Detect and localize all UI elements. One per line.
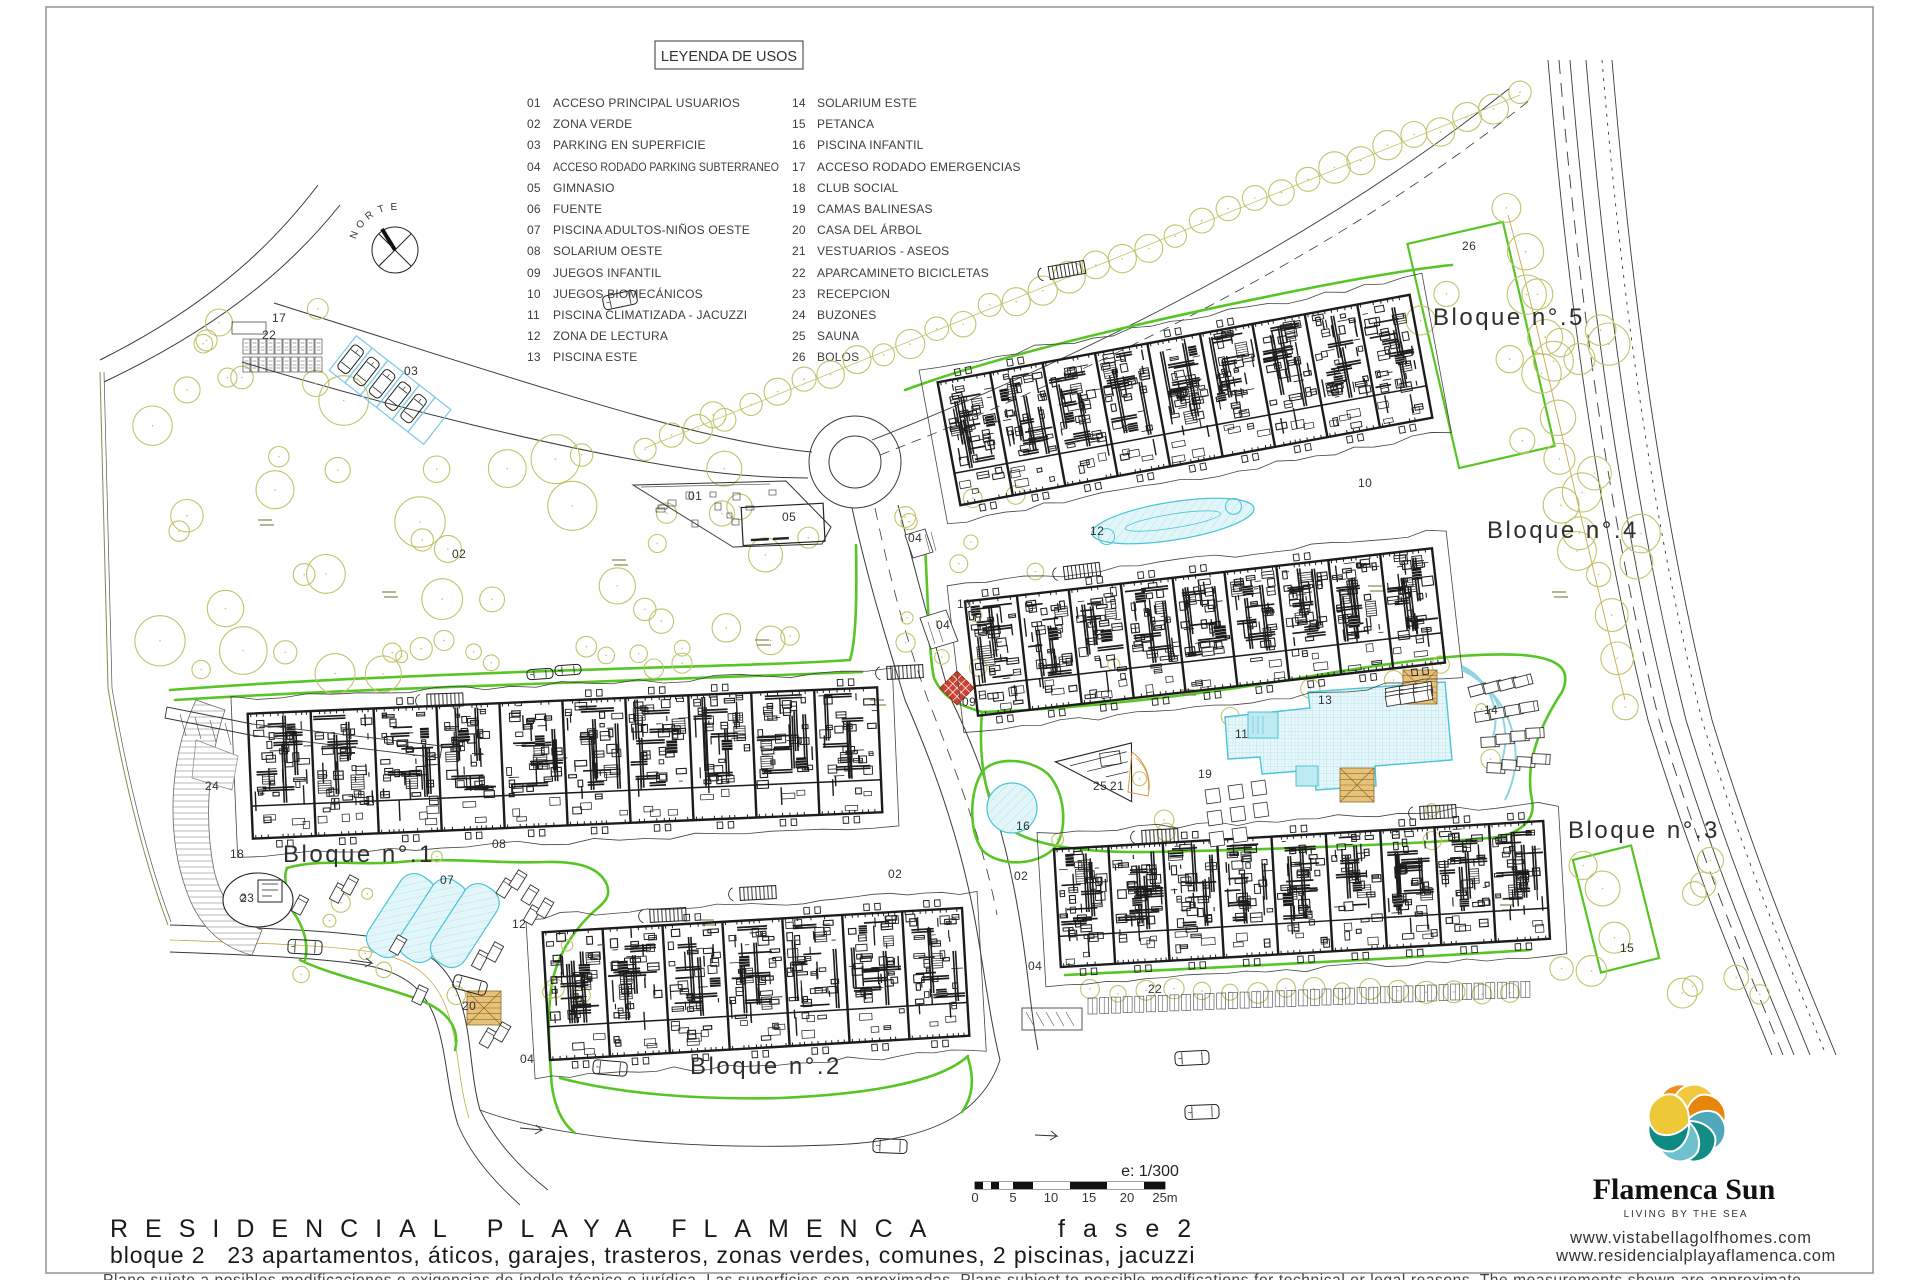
svg-text:08: 08 bbox=[527, 244, 541, 258]
svg-text:19: 19 bbox=[1198, 767, 1212, 781]
svg-text:ACCESO RODADO EMERGENCIAS: ACCESO RODADO EMERGENCIAS bbox=[817, 160, 1021, 174]
svg-text:02: 02 bbox=[527, 117, 541, 131]
svg-text:Plano sujeto a posibles modifi: Plano sujeto a posibles modificaciones o… bbox=[103, 1272, 1801, 1280]
svg-text:RECEPCION: RECEPCION bbox=[817, 287, 890, 301]
svg-text:e: 1/300: e: 1/300 bbox=[1121, 1163, 1179, 1180]
svg-text:20: 20 bbox=[462, 999, 476, 1013]
svg-text:PISCINA ADULTOS-NIÑOS OESTE: PISCINA ADULTOS-NIÑOS OESTE bbox=[553, 223, 750, 237]
svg-text:CAMAS BALINESAS: CAMAS BALINESAS bbox=[817, 202, 933, 216]
svg-text:10: 10 bbox=[527, 287, 541, 301]
svg-text:BUZONES: BUZONES bbox=[817, 308, 876, 322]
svg-text:15: 15 bbox=[1620, 941, 1634, 955]
svg-text:02: 02 bbox=[1014, 869, 1028, 883]
svg-text:04: 04 bbox=[936, 618, 950, 632]
svg-text:05: 05 bbox=[782, 510, 796, 524]
svg-text:ACCESO PRINCIPAL USUARIOS: ACCESO PRINCIPAL USUARIOS bbox=[553, 96, 740, 110]
svg-text:PISCINA CLIMATIZADA - JACUZZI: PISCINA CLIMATIZADA - JACUZZI bbox=[553, 308, 747, 322]
svg-text:SAUNA: SAUNA bbox=[817, 329, 859, 343]
svg-text:01: 01 bbox=[527, 96, 541, 110]
svg-text:ACCESO RODADO PARKING SUBTERRA: ACCESO RODADO PARKING SUBTERRANEO bbox=[553, 160, 779, 174]
svg-text:FUENTE: FUENTE bbox=[553, 202, 602, 216]
svg-text:18: 18 bbox=[230, 847, 244, 861]
svg-text:21: 21 bbox=[1110, 779, 1124, 793]
svg-text:03: 03 bbox=[527, 138, 541, 152]
svg-text:bloque 2 23 apartamentos, át: bloque 2 23 apartamentos, áticos, garaje… bbox=[110, 1242, 1195, 1268]
svg-text:PISCINA ESTE: PISCINA ESTE bbox=[553, 350, 637, 364]
svg-text:25m: 25m bbox=[1152, 1190, 1177, 1205]
svg-text:22: 22 bbox=[262, 328, 276, 342]
svg-text:JUEGOS INFANTIL: JUEGOS INFANTIL bbox=[553, 266, 661, 280]
svg-text:JUEGOS BIOMECÁNICOS: JUEGOS BIOMECÁNICOS bbox=[553, 286, 703, 301]
svg-text:Bloque n°.5: Bloque n°.5 bbox=[1433, 304, 1585, 331]
svg-text:22: 22 bbox=[792, 266, 806, 280]
svg-text:09: 09 bbox=[962, 695, 976, 709]
svg-text:09: 09 bbox=[527, 266, 541, 280]
svg-text:17: 17 bbox=[792, 160, 806, 174]
svg-text:Bloque n°.2: Bloque n°.2 bbox=[690, 1053, 842, 1080]
svg-text:13: 13 bbox=[527, 350, 541, 364]
svg-text:PISCINA INFANTIL: PISCINA INFANTIL bbox=[817, 138, 924, 152]
svg-text:23: 23 bbox=[240, 891, 254, 905]
svg-text:24: 24 bbox=[205, 779, 219, 793]
svg-text:02: 02 bbox=[452, 547, 466, 561]
svg-text:LIVING BY THE SEA: LIVING BY THE SEA bbox=[1624, 1209, 1749, 1220]
svg-text:26: 26 bbox=[1462, 239, 1476, 253]
svg-text:16: 16 bbox=[1016, 819, 1030, 833]
svg-text:Flamenca Sun: Flamenca Sun bbox=[1593, 1173, 1776, 1206]
svg-text:Bloque n°.1: Bloque n°.1 bbox=[283, 841, 435, 868]
svg-text:14: 14 bbox=[1484, 703, 1498, 717]
svg-text:07: 07 bbox=[440, 873, 454, 887]
svg-text:LEYENDA DE USOS: LEYENDA DE USOS bbox=[661, 49, 797, 65]
svg-text:SOLARIUM ESTE: SOLARIUM ESTE bbox=[817, 96, 917, 110]
svg-text:08: 08 bbox=[492, 837, 506, 851]
svg-text:12: 12 bbox=[527, 329, 541, 343]
svg-text:VESTUARIOS - ASEOS: VESTUARIOS - ASEOS bbox=[817, 244, 949, 258]
svg-text:02: 02 bbox=[888, 867, 902, 881]
svg-text:06: 06 bbox=[527, 202, 541, 216]
svg-text:10: 10 bbox=[1044, 1190, 1058, 1205]
svg-text:15: 15 bbox=[1082, 1190, 1096, 1205]
svg-text:11: 11 bbox=[527, 308, 540, 322]
svg-text:www.vistabellagolfhomes.com: www.vistabellagolfhomes.com bbox=[1569, 1229, 1812, 1247]
svg-text:24: 24 bbox=[792, 308, 806, 322]
svg-text:GIMNASIO: GIMNASIO bbox=[553, 181, 615, 195]
svg-text:18: 18 bbox=[792, 181, 806, 195]
svg-text:04: 04 bbox=[908, 531, 922, 545]
svg-text:CLUB SOCIAL: CLUB SOCIAL bbox=[817, 181, 899, 195]
svg-text:04: 04 bbox=[520, 1052, 534, 1066]
svg-text:SOLARIUM OESTE: SOLARIUM OESTE bbox=[553, 244, 663, 258]
svg-text:12: 12 bbox=[1090, 524, 1104, 538]
svg-text:21: 21 bbox=[792, 244, 806, 258]
svg-text:13: 13 bbox=[1318, 693, 1332, 707]
svg-text:APARCAMINETO BICICLETAS: APARCAMINETO BICICLETAS bbox=[817, 266, 989, 280]
svg-text:04: 04 bbox=[1028, 959, 1042, 973]
svg-text:26: 26 bbox=[792, 350, 806, 364]
svg-text:14: 14 bbox=[792, 96, 806, 110]
svg-text:Bloque n°.3: Bloque n°.3 bbox=[1568, 817, 1720, 844]
svg-text:12: 12 bbox=[512, 917, 526, 931]
svg-text:22: 22 bbox=[1148, 982, 1162, 996]
svg-text:20: 20 bbox=[792, 223, 806, 237]
svg-text:10: 10 bbox=[1358, 476, 1372, 490]
svg-text:PETANCA: PETANCA bbox=[817, 117, 874, 131]
svg-text:www.residencialplayaflamenca.c: www.residencialplayaflamenca.com bbox=[1555, 1247, 1836, 1265]
svg-text:16: 16 bbox=[792, 138, 806, 152]
svg-text:ZONA VERDE: ZONA VERDE bbox=[553, 117, 632, 131]
svg-text:25: 25 bbox=[1093, 779, 1107, 793]
svg-text:PARKING EN SUPERFICIE: PARKING EN SUPERFICIE bbox=[553, 138, 706, 152]
svg-text:20: 20 bbox=[1120, 1190, 1134, 1205]
svg-text:05: 05 bbox=[527, 181, 541, 195]
svg-text:10: 10 bbox=[957, 597, 971, 611]
svg-text:15: 15 bbox=[792, 117, 806, 131]
svg-text:11: 11 bbox=[1235, 727, 1248, 741]
svg-text:25: 25 bbox=[792, 329, 806, 343]
svg-text:CASA DEL ÁRBOL: CASA DEL ÁRBOL bbox=[817, 222, 922, 237]
svg-text:BOLOS: BOLOS bbox=[817, 350, 859, 364]
svg-text:03: 03 bbox=[404, 364, 418, 378]
svg-text:17: 17 bbox=[272, 311, 286, 325]
svg-text:23: 23 bbox=[792, 287, 806, 301]
svg-text:5: 5 bbox=[1009, 1190, 1016, 1205]
svg-text:ZONA DE LECTURA: ZONA DE LECTURA bbox=[553, 329, 668, 343]
svg-text:E: E bbox=[390, 202, 397, 213]
svg-text:04: 04 bbox=[527, 160, 541, 174]
svg-text:Bloque n°.4: Bloque n°.4 bbox=[1487, 517, 1639, 544]
svg-text:19: 19 bbox=[792, 202, 806, 216]
svg-text:RESIDENCIAL PLAYA FLAMENCA: RESIDENCIAL PLAYA FLAMENCA bbox=[110, 1215, 943, 1243]
svg-text:0: 0 bbox=[971, 1190, 978, 1205]
svg-text:01: 01 bbox=[688, 489, 702, 503]
svg-text:07: 07 bbox=[527, 223, 541, 237]
svg-text:fase2: fase2 bbox=[1058, 1215, 1209, 1243]
